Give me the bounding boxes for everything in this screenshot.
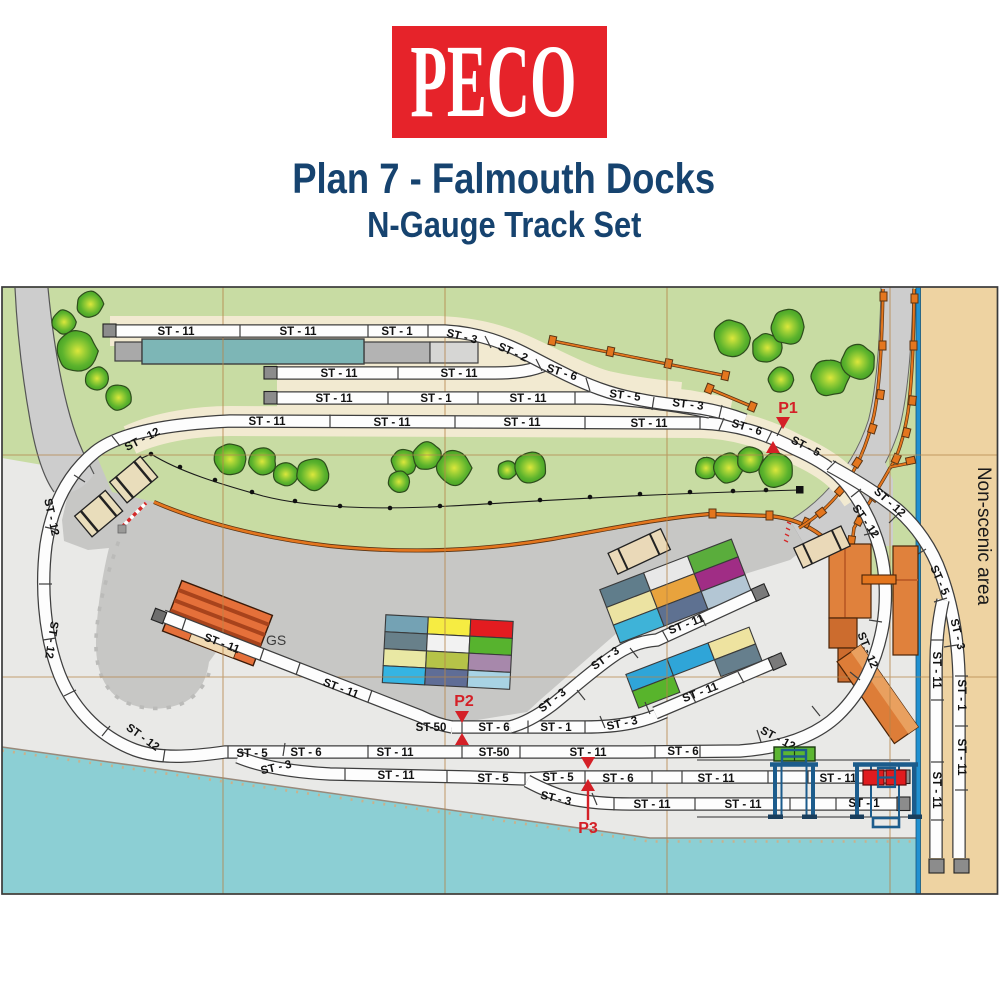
svg-text:ST - 1: ST - 1: [540, 722, 572, 734]
svg-text:ST - 11: ST - 11: [373, 417, 411, 429]
svg-text:ST - 11: ST - 11: [279, 326, 317, 338]
svg-text:ST - 6: ST - 6: [478, 722, 509, 734]
svg-text:ST - 11: ST - 11: [955, 738, 967, 776]
svg-text:P2: P2: [454, 693, 474, 710]
svg-text:ST - 11: ST - 11: [633, 799, 671, 811]
svg-text:ST - 1: ST - 1: [955, 679, 967, 711]
svg-text:ST - 1: ST - 1: [420, 393, 452, 405]
svg-text:P1: P1: [778, 400, 798, 417]
svg-text:ST - 5: ST - 5: [542, 772, 574, 784]
svg-text:ST - 11: ST - 11: [377, 770, 415, 782]
svg-text:ST - 1: ST - 1: [848, 798, 880, 810]
svg-text:ST - 11: ST - 11: [248, 416, 286, 428]
svg-text:ST - 11: ST - 11: [724, 799, 762, 811]
svg-text:P3: P3: [578, 820, 598, 837]
svg-text:ST - 11: ST - 11: [157, 326, 195, 338]
svg-text:ST - 11: ST - 11: [930, 651, 942, 689]
svg-text:ST - 1: ST - 1: [381, 326, 413, 338]
svg-text:ST - 11: ST - 11: [819, 773, 857, 785]
svg-text:ST - 11: ST - 11: [503, 417, 541, 429]
svg-text:ST - 11: ST - 11: [697, 773, 735, 785]
svg-text:ST - 6: ST - 6: [602, 773, 633, 785]
svg-text:ST - 5: ST - 5: [477, 773, 509, 785]
svg-text:ST-50: ST-50: [416, 722, 447, 734]
svg-text:ST - 11: ST - 11: [930, 771, 942, 809]
svg-text:ST-50: ST-50: [479, 747, 510, 759]
svg-text:ST - 5: ST - 5: [236, 748, 268, 760]
svg-text:ST - 11: ST - 11: [440, 368, 478, 380]
svg-text:ST - 11: ST - 11: [315, 393, 353, 405]
svg-text:ST - 6: ST - 6: [667, 746, 698, 758]
svg-text:GS: GS: [266, 632, 286, 648]
svg-text:ST - 6: ST - 6: [290, 747, 321, 759]
svg-text:ST - 11: ST - 11: [320, 368, 358, 380]
svg-text:ST - 11: ST - 11: [630, 418, 668, 430]
svg-text:ST - 11: ST - 11: [509, 393, 547, 405]
svg-text:Non-scenic area: Non-scenic area: [973, 467, 994, 606]
svg-text:ST - 11: ST - 11: [376, 747, 414, 759]
